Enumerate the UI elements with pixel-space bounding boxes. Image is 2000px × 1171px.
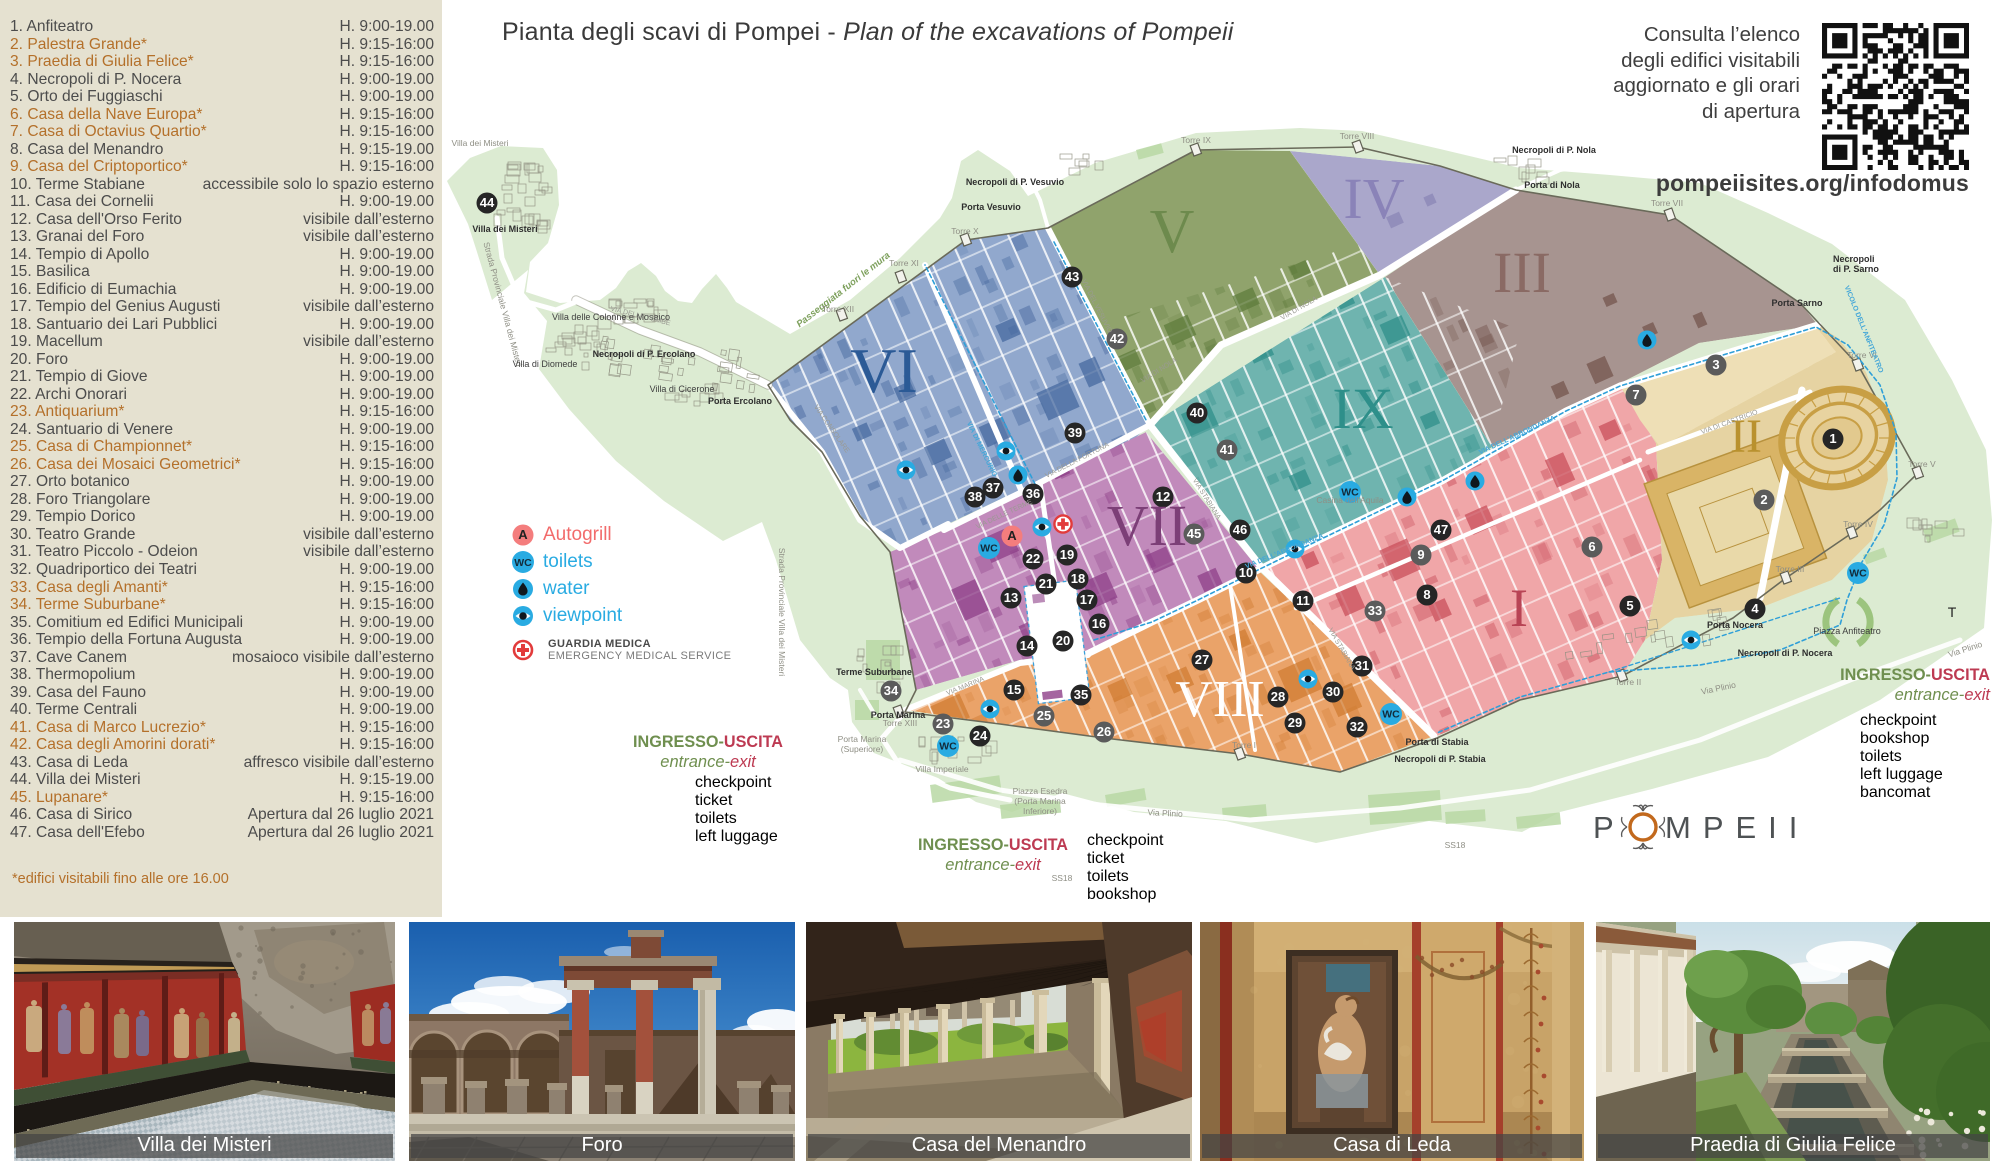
svg-text:Necropoli di P. Nocera: Necropoli di P. Nocera: [1738, 648, 1834, 658]
svg-text:A: A: [518, 527, 528, 542]
svg-text:Necropoli di P. Vesuvio: Necropoli di P. Vesuvio: [966, 177, 1065, 187]
svg-text:Torre V: Torre V: [1908, 459, 1936, 469]
svg-text:9: 9: [1417, 547, 1424, 562]
svg-text:Torre I: Torre I: [1232, 740, 1256, 750]
svg-text:29: 29: [1288, 715, 1302, 730]
svg-text:SS18: SS18: [1445, 840, 1466, 850]
svg-text:Villa di Diomede: Villa di Diomede: [513, 359, 578, 369]
svg-text:WC: WC: [939, 740, 957, 752]
svg-text:T: T: [1948, 604, 1957, 620]
svg-text:Necropoli di P. Ercolano: Necropoli di P. Ercolano: [593, 349, 696, 359]
svg-text:Via Plinio: Via Plinio: [1147, 807, 1183, 819]
svg-text:WC: WC: [514, 557, 532, 569]
svg-text:17: 17: [1080, 592, 1094, 607]
svg-text:Villa dei Misteri: Villa dei Misteri: [472, 224, 537, 234]
svg-text:Torre III: Torre III: [1776, 564, 1805, 574]
svg-text:30: 30: [1326, 684, 1340, 699]
svg-text:1: 1: [1829, 431, 1836, 446]
svg-text:V: V: [1150, 198, 1195, 266]
svg-text:Torre VII: Torre VII: [1651, 198, 1683, 208]
svg-text:33: 33: [1368, 603, 1382, 618]
svg-text:42: 42: [1110, 331, 1124, 346]
svg-text:Necropoli di P. Stabia: Necropoli di P. Stabia: [1394, 754, 1486, 764]
svg-text:16: 16: [1092, 616, 1106, 631]
svg-text:Porta Vesuvio: Porta Vesuvio: [961, 202, 1021, 212]
svg-text:4: 4: [1751, 601, 1759, 616]
svg-text:45: 45: [1187, 526, 1201, 541]
svg-text:19: 19: [1060, 547, 1074, 562]
svg-text:(Porta Marina: (Porta Marina: [1014, 796, 1066, 806]
svg-text:21: 21: [1039, 576, 1053, 591]
svg-text:37: 37: [986, 480, 1000, 495]
svg-text:47: 47: [1434, 522, 1448, 537]
svg-text:(Superiore): (Superiore): [841, 744, 884, 754]
svg-text:Piazza Anfiteatro: Piazza Anfiteatro: [1813, 626, 1881, 636]
svg-text:39: 39: [1068, 425, 1082, 440]
svg-text:Necropoli di P. Nola: Necropoli di P. Nola: [1512, 145, 1597, 155]
svg-text:WC: WC: [1849, 567, 1867, 579]
svg-text:34: 34: [884, 683, 899, 698]
svg-text:Inferiore): Inferiore): [1023, 806, 1057, 816]
svg-text:P: P: [1593, 810, 1626, 845]
svg-text:WC: WC: [1382, 708, 1400, 720]
svg-text:43: 43: [1065, 269, 1079, 284]
svg-text:Terme Suburbane: Terme Suburbane: [836, 667, 912, 677]
svg-text:I: I: [1510, 578, 1528, 638]
svg-text:Villa dei Misteri: Villa dei Misteri: [451, 138, 508, 148]
svg-text:22: 22: [1026, 551, 1040, 566]
svg-text:15: 15: [1007, 682, 1021, 697]
svg-text:20: 20: [1056, 633, 1070, 648]
svg-text:Casina dell'Aquila: Casina dell'Aquila: [1316, 495, 1384, 505]
svg-text:13: 13: [1004, 590, 1018, 605]
svg-text:35: 35: [1074, 687, 1088, 702]
svg-text:A: A: [1007, 528, 1017, 543]
svg-text:MPEII: MPEII: [1665, 810, 1808, 845]
svg-text:Porta Ercolano: Porta Ercolano: [708, 396, 773, 406]
svg-text:5: 5: [1626, 598, 1633, 613]
svg-text:6: 6: [1588, 539, 1595, 554]
svg-text:24: 24: [973, 728, 988, 743]
svg-text:27: 27: [1195, 652, 1209, 667]
svg-text:VI: VI: [850, 335, 918, 406]
svg-text:Porta Marina: Porta Marina: [838, 734, 887, 744]
svg-text:Torre II: Torre II: [1615, 677, 1641, 687]
svg-text:Porta Marina: Porta Marina: [871, 710, 927, 720]
svg-text:28: 28: [1271, 689, 1285, 704]
svg-text:3: 3: [1712, 357, 1719, 372]
svg-text:38: 38: [968, 489, 982, 504]
svg-text:Villa di Cicerone: Villa di Cicerone: [650, 384, 715, 394]
svg-text:8: 8: [1423, 587, 1430, 602]
svg-text:Torre XI: Torre XI: [889, 258, 919, 268]
svg-text:Torre XII: Torre XII: [822, 304, 854, 314]
svg-text:IX: IX: [1332, 376, 1393, 441]
svg-text:Piazza Esedra: Piazza Esedra: [1013, 786, 1068, 796]
svg-text:Necropoli: Necropoli: [1833, 254, 1875, 264]
svg-text:26: 26: [1097, 724, 1111, 739]
svg-text:III: III: [1493, 240, 1551, 305]
svg-text:25: 25: [1037, 708, 1051, 723]
svg-text:32: 32: [1350, 719, 1364, 734]
svg-text:18: 18: [1071, 571, 1085, 586]
svg-text:Porta Nocera: Porta Nocera: [1707, 620, 1764, 630]
svg-text:2: 2: [1760, 492, 1767, 507]
svg-text:Torre X: Torre X: [951, 226, 979, 236]
svg-text:40: 40: [1190, 405, 1204, 420]
svg-text:VII: VII: [1107, 493, 1188, 558]
svg-text:11: 11: [1296, 593, 1310, 608]
svg-text:Porta Sarno: Porta Sarno: [1771, 298, 1823, 308]
svg-text:7: 7: [1632, 387, 1639, 402]
svg-text:23: 23: [936, 716, 950, 731]
svg-text:46: 46: [1233, 522, 1247, 537]
svg-text:31: 31: [1355, 658, 1369, 673]
svg-text:VIII: VIII: [1175, 671, 1265, 728]
svg-text:14: 14: [1020, 638, 1035, 653]
svg-text:Strada Provinciale Villa dei M: Strada Provinciale Villa dei Misteri: [777, 548, 787, 676]
svg-text:36: 36: [1026, 486, 1040, 501]
svg-text:41: 41: [1220, 442, 1234, 457]
svg-text:Torre IX: Torre IX: [1181, 135, 1211, 145]
svg-text:IV: IV: [1343, 166, 1404, 231]
svg-text:Villa Imperiale: Villa Imperiale: [915, 764, 969, 774]
svg-text:Porta di Stabia: Porta di Stabia: [1405, 737, 1469, 747]
svg-text:WC: WC: [980, 542, 998, 554]
svg-text:Porta di Nola: Porta di Nola: [1524, 180, 1581, 190]
svg-text:Torre IV: Torre IV: [1843, 519, 1873, 529]
svg-text:Torre VIII: Torre VIII: [1340, 131, 1374, 141]
svg-text:44: 44: [480, 195, 495, 210]
svg-text:di P. Sarno: di P. Sarno: [1833, 264, 1879, 274]
